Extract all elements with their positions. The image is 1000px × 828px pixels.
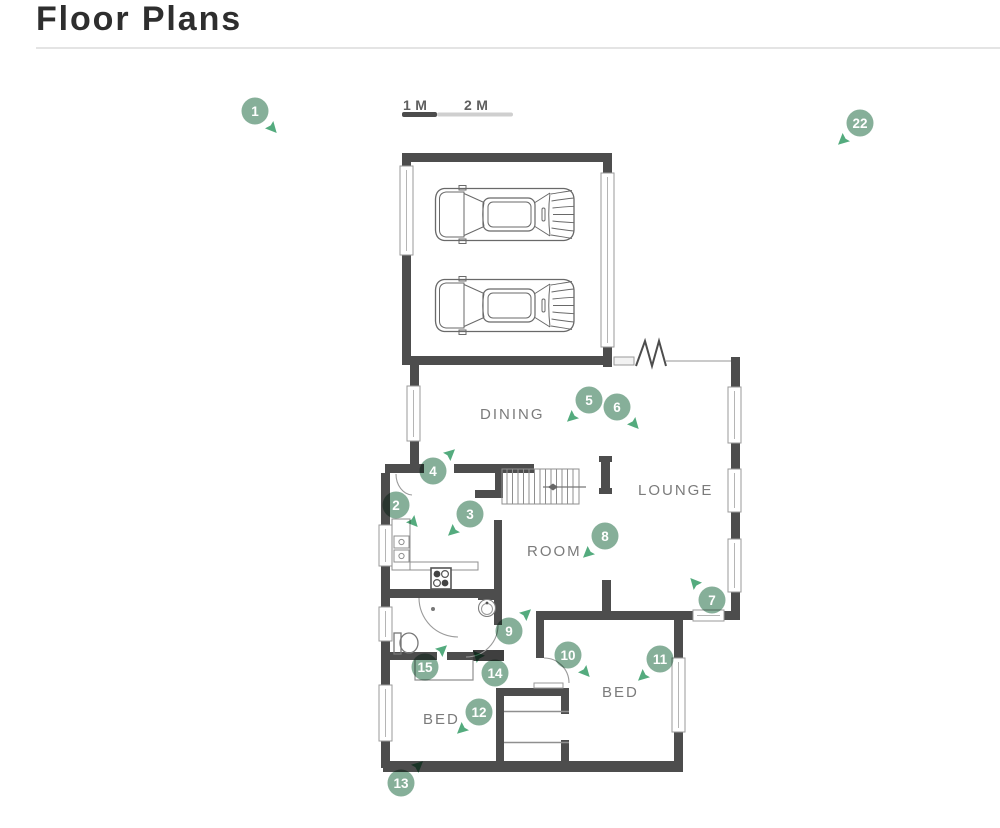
svg-text:6: 6 (613, 400, 621, 415)
svg-text:10: 10 (560, 648, 575, 663)
svg-text:13: 13 (393, 776, 409, 791)
svg-text:11: 11 (653, 652, 668, 667)
svg-text:15: 15 (417, 660, 433, 675)
svg-text:5: 5 (585, 393, 593, 408)
svg-text:1M: 1M (403, 97, 431, 113)
svg-text:1: 1 (251, 104, 259, 119)
svg-text:7: 7 (708, 593, 716, 608)
svg-text:BED: BED (423, 711, 460, 728)
svg-text:3: 3 (466, 507, 474, 522)
svg-text:14: 14 (487, 666, 503, 681)
svg-text:2: 2 (392, 498, 400, 513)
svg-text:BED: BED (602, 684, 639, 701)
svg-text:4: 4 (429, 464, 437, 479)
svg-text:8: 8 (601, 529, 609, 544)
svg-text:DINING: DINING (480, 406, 545, 423)
svg-text:12: 12 (471, 705, 486, 720)
svg-text:2M: 2M (464, 97, 492, 113)
svg-text:9: 9 (505, 624, 513, 639)
svg-text:ROOM: ROOM (527, 543, 582, 560)
svg-text:LOUNGE: LOUNGE (638, 482, 713, 499)
svg-text:22: 22 (852, 116, 867, 131)
